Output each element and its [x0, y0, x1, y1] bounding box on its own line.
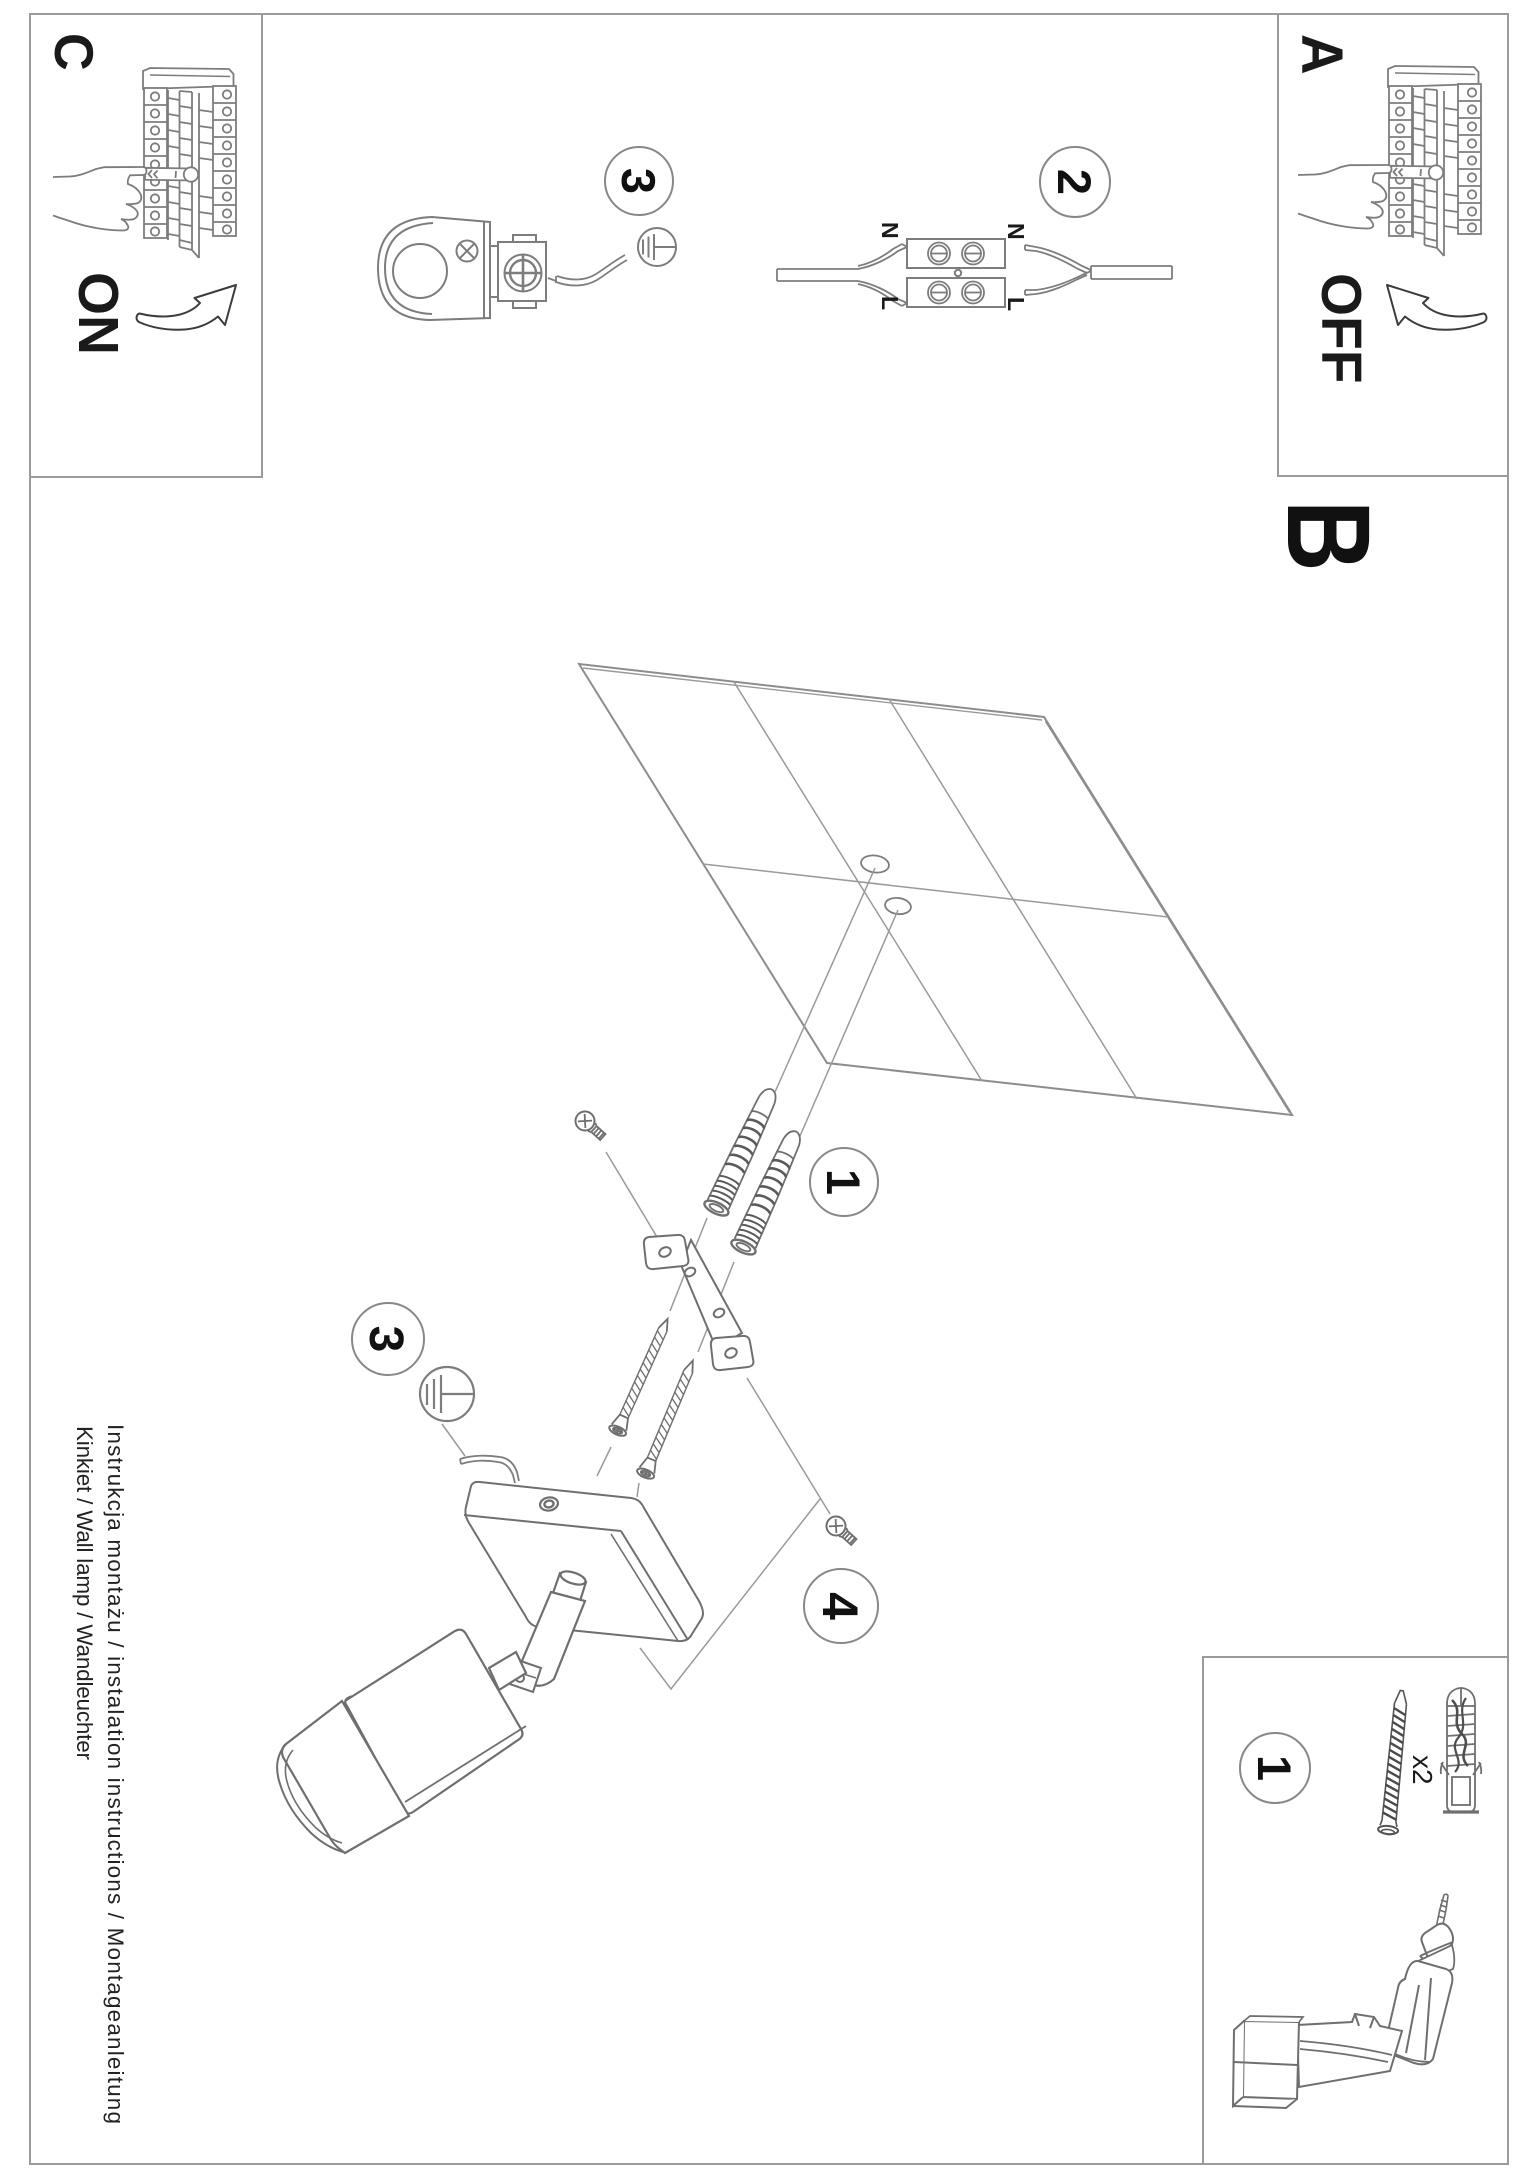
svg-text:OFF: OFF: [1310, 273, 1374, 384]
svg-text:Kinkiet / Wall lamp / Wandleuc: Kinkiet / Wall lamp / Wandleuchter: [72, 1426, 97, 1761]
svg-text:N: N: [877, 222, 903, 239]
svg-text:A: A: [1289, 34, 1354, 75]
svg-text:1: 1: [817, 1169, 870, 1195]
svg-text:L: L: [1003, 297, 1029, 311]
svg-text:2: 2: [1048, 169, 1101, 195]
svg-text:ON: ON: [67, 272, 131, 355]
svg-text:1: 1: [1248, 1755, 1301, 1781]
svg-text:L: L: [877, 296, 903, 310]
svg-text:4: 4: [812, 1592, 868, 1620]
svg-text:B: B: [1262, 500, 1394, 572]
svg-text:Instrukcja montażu / instalati: Instrukcja montażu / instalation instruc…: [103, 1424, 128, 2124]
svg-text:3: 3: [612, 168, 665, 194]
svg-text:C: C: [43, 33, 105, 71]
svg-text:N: N: [1003, 223, 1029, 240]
svg-text:x2: x2: [1407, 1755, 1438, 1785]
svg-text:3: 3: [359, 1326, 412, 1353]
